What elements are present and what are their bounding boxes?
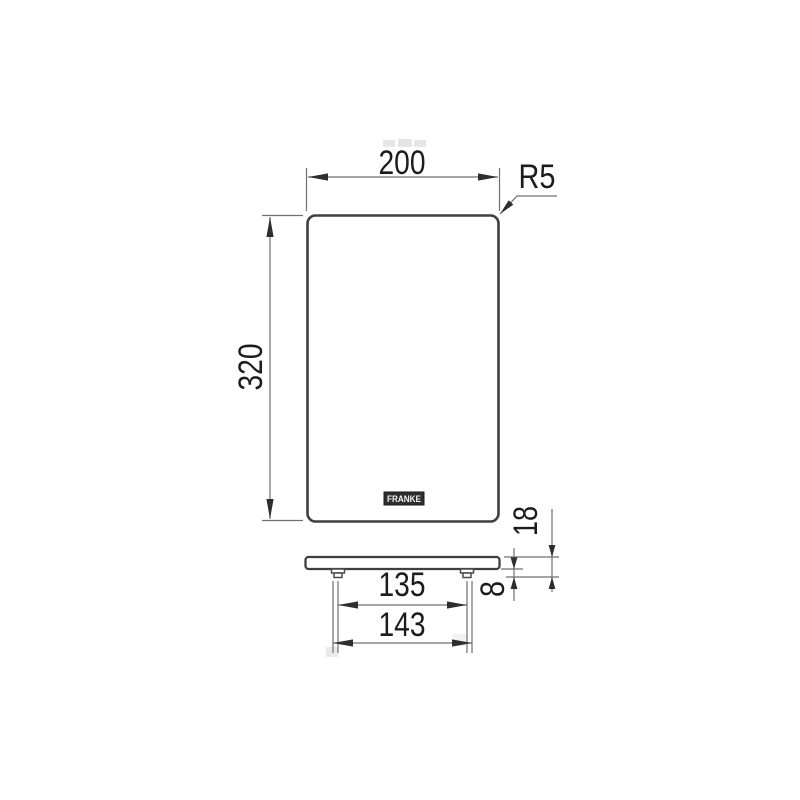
technical-drawing-canvas: FRANKE 200 320 R5 (0, 0, 800, 800)
dimension-label-width: 200 (379, 144, 426, 182)
dimension-label-feet-outer: 143 (379, 606, 426, 644)
arrowhead-top (549, 545, 556, 557)
franke-logo: FRANKE (384, 492, 424, 505)
drawing-svg: FRANKE 200 320 R5 (0, 0, 800, 800)
left-foot (332, 569, 345, 578)
dimension-width-200: 200 (307, 144, 500, 211)
franke-logo-text: FRANKE (387, 494, 421, 504)
right-foot (461, 569, 474, 578)
dimension-corner-radius-r5: R5 (500, 158, 557, 214)
front-view: FRANKE (308, 216, 499, 522)
arrowhead-left (333, 639, 353, 646)
arrowhead-bottom (266, 499, 273, 519)
dimension-label-radius: R5 (519, 158, 556, 196)
arrowhead-right (478, 173, 498, 180)
dimension-overall-height-18: 18 (504, 506, 559, 592)
dimension-label-foot-height: 8 (474, 581, 512, 597)
arrowhead-left (308, 173, 328, 180)
arrowhead-top (511, 558, 518, 570)
arrowhead-right (447, 601, 467, 608)
arrowhead-left (338, 601, 358, 608)
dimension-height-320: 320 (232, 216, 303, 521)
dimension-label-overall-height: 18 (507, 506, 545, 536)
dimension-feet-outer-143: 143 (333, 606, 472, 647)
dimension-label-height: 320 (232, 344, 270, 391)
arrowhead-top (266, 217, 273, 237)
dimension-label-feet-centers: 135 (379, 566, 426, 604)
watermark-blob (326, 647, 338, 657)
arrowhead-bottom (549, 577, 556, 589)
left-foot-stub (334, 573, 342, 578)
board-front-outline (308, 216, 499, 522)
right-foot-stub (463, 573, 471, 578)
